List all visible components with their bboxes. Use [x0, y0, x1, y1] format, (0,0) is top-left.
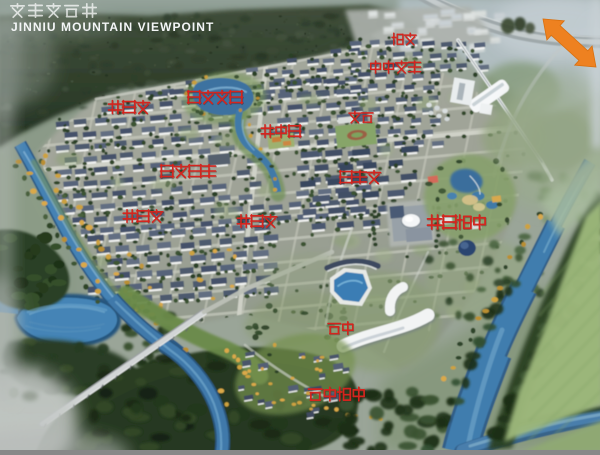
svg-text:JINNIU MOUNTAIN VIEWPOINT: JINNIU MOUNTAIN VIEWPOINT: [11, 20, 214, 34]
